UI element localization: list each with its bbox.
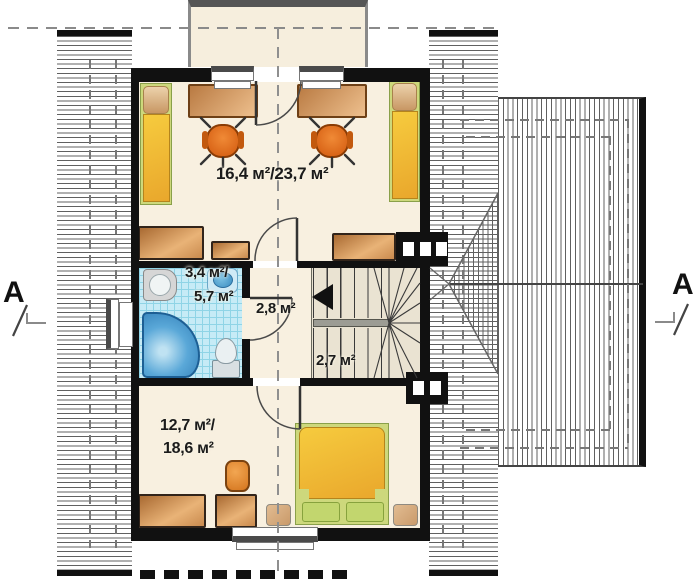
interior-wall-bedroom bbox=[131, 378, 253, 386]
exterior-wall-bottom bbox=[131, 528, 233, 541]
section-marker-left: A bbox=[3, 278, 25, 308]
attic-floor-plan: 16,4 м²/23,7 м² 3,4 м²/ 5,7 м² 2,8 м² 2,… bbox=[0, 0, 700, 580]
chimney-flue bbox=[403, 242, 414, 256]
bed-blanket bbox=[299, 427, 385, 499]
dresser-2 bbox=[215, 494, 257, 528]
single-bed-left bbox=[140, 83, 172, 205]
chimney-block-upper bbox=[396, 232, 448, 266]
hidden-wall-dashed-line bbox=[466, 136, 610, 138]
side-wing-ridge-line bbox=[448, 283, 643, 285]
window-bottom bbox=[232, 527, 318, 542]
washbasin-bowl bbox=[149, 274, 171, 296]
area-label-study: 16,4 м²/23,7 м² bbox=[216, 164, 328, 184]
hidden-wall-dashed-line bbox=[462, 60, 464, 548]
section-marker-symbol-right bbox=[674, 304, 688, 335]
hidden-wall-dashed-line bbox=[466, 429, 610, 431]
hidden-wall-dashed-line bbox=[460, 119, 628, 121]
chair-armrest bbox=[238, 131, 244, 149]
area-label-bedroom-line1: 12,7 м²/ bbox=[160, 417, 215, 435]
window-top-right-sill bbox=[302, 81, 341, 89]
chimney-flue bbox=[436, 242, 447, 256]
hidden-wall-dashed-line bbox=[627, 119, 629, 447]
hidden-wall-dashed-line bbox=[609, 136, 611, 429]
roof-ridge-dashed-line bbox=[8, 27, 498, 29]
toilet-bowl bbox=[215, 338, 237, 364]
window-top-left bbox=[211, 66, 254, 81]
chimney-flue bbox=[413, 381, 424, 395]
office-chair-left bbox=[206, 124, 240, 158]
dresser-1 bbox=[138, 494, 206, 528]
exterior-wall-top bbox=[343, 68, 430, 82]
chimney-flue bbox=[430, 381, 441, 395]
side-wing-roof bbox=[498, 97, 646, 467]
desk-right bbox=[297, 84, 367, 118]
cabinet-study-1 bbox=[138, 226, 204, 260]
area-label-staircase: 2,7 м² bbox=[316, 352, 355, 369]
exterior-wall-top bbox=[131, 68, 212, 82]
area-label-bedroom-line2: 18,6 м² bbox=[163, 440, 214, 458]
bed-pillow bbox=[302, 502, 340, 522]
bed-pillow bbox=[392, 83, 417, 111]
exterior-wall-bottom bbox=[317, 528, 430, 541]
chair-armrest bbox=[202, 131, 208, 149]
chimney-block-lower bbox=[406, 372, 448, 404]
double-bed bbox=[295, 423, 389, 525]
blanket-notch bbox=[375, 489, 385, 499]
blanket-notch bbox=[299, 489, 309, 499]
bathroom-wall bbox=[242, 339, 250, 378]
hidden-wall-dashed-line bbox=[460, 447, 628, 449]
bed-blanket bbox=[392, 111, 418, 199]
bed-blanket bbox=[143, 114, 170, 202]
section-marker-symbol-right bbox=[655, 312, 674, 322]
area-label-bathroom-line1: 3,4 м²/ bbox=[185, 264, 228, 281]
area-label-bathroom-line2: 5,7 м² bbox=[194, 288, 233, 305]
stair-handrail bbox=[313, 319, 390, 327]
cabinet-study-3 bbox=[332, 233, 396, 261]
desk-left bbox=[188, 84, 258, 118]
window-top-left-sill bbox=[214, 81, 251, 89]
washbasin bbox=[143, 269, 177, 301]
bed-pillow bbox=[346, 502, 384, 522]
nightstand-right bbox=[393, 504, 418, 526]
hidden-wall-dashed-line bbox=[89, 60, 91, 548]
bed-pillow bbox=[143, 86, 169, 114]
window-bottom-sill bbox=[236, 542, 314, 550]
cabinet-study-2 bbox=[211, 241, 250, 260]
exterior-wall-right bbox=[420, 68, 430, 541]
section-marker-right: A bbox=[672, 270, 694, 300]
office-chair-right bbox=[315, 124, 349, 158]
chimney-flue bbox=[420, 242, 431, 256]
bathroom-wall bbox=[242, 268, 250, 298]
stool bbox=[225, 460, 250, 492]
window-bathroom bbox=[119, 302, 133, 347]
window-top-right bbox=[299, 66, 344, 81]
hidden-wall-dashed-line bbox=[442, 60, 444, 548]
window-bathroom-sill bbox=[106, 299, 119, 349]
section-marker-symbol-left bbox=[13, 305, 27, 336]
section-marker-symbol-left bbox=[27, 313, 46, 323]
lower-level-edge-dashed-line bbox=[140, 570, 347, 579]
chair-armrest bbox=[347, 131, 353, 149]
area-label-hall: 2,8 м² bbox=[256, 300, 295, 317]
single-bed-right bbox=[389, 80, 420, 202]
stair-flight-upper bbox=[313, 268, 383, 318]
chair-armrest bbox=[311, 131, 317, 149]
